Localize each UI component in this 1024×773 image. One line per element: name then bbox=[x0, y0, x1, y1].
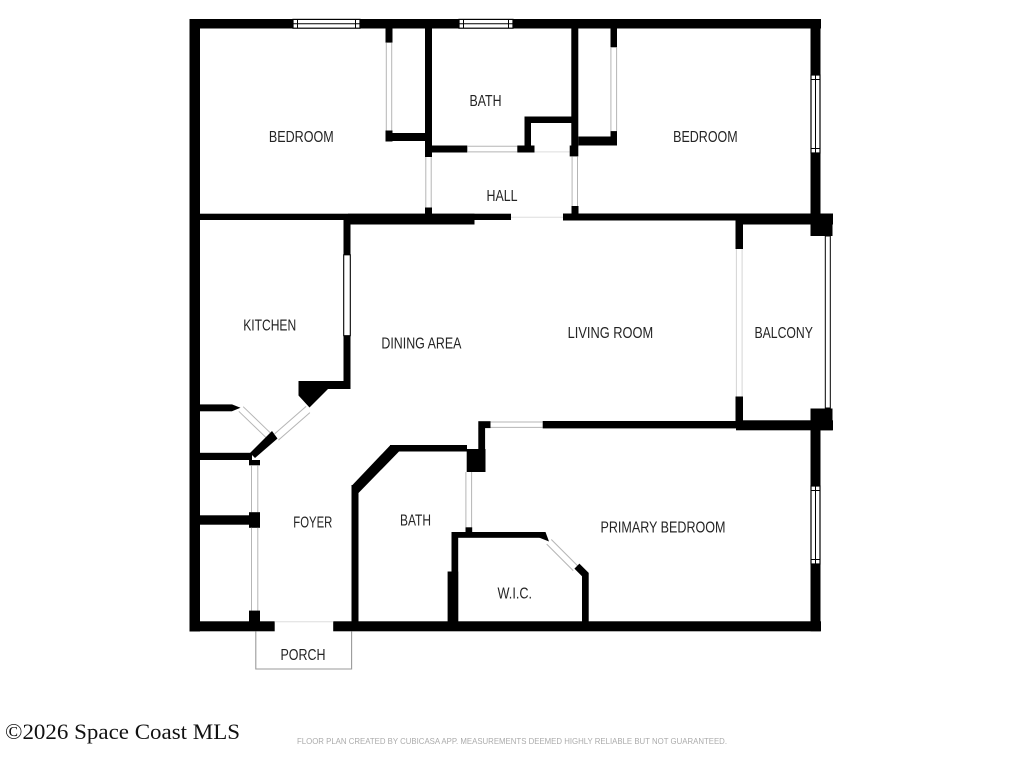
svg-text:LIVING ROOM: LIVING ROOM bbox=[568, 325, 654, 342]
svg-text:PRIMARY BEDROOM: PRIMARY BEDROOM bbox=[601, 520, 726, 537]
svg-text:BALCONY: BALCONY bbox=[754, 325, 813, 342]
svg-text:FOYER: FOYER bbox=[293, 514, 332, 531]
svg-text:DINING AREA: DINING AREA bbox=[381, 335, 461, 352]
svg-text:KITCHEN: KITCHEN bbox=[243, 318, 296, 335]
svg-text:BEDROOM: BEDROOM bbox=[673, 129, 738, 146]
svg-text:©2026 Space Coast MLS: ©2026 Space Coast MLS bbox=[5, 719, 240, 744]
svg-text:FLOOR PLAN CREATED BY CUBICASA: FLOOR PLAN CREATED BY CUBICASA APP. MEAS… bbox=[297, 736, 727, 746]
svg-text:PORCH: PORCH bbox=[281, 647, 326, 664]
svg-text:BEDROOM: BEDROOM bbox=[269, 129, 334, 146]
svg-text:HALL: HALL bbox=[487, 188, 518, 205]
svg-text:W.I.C.: W.I.C. bbox=[498, 586, 533, 603]
svg-text:BATH: BATH bbox=[400, 513, 431, 530]
svg-text:BATH: BATH bbox=[470, 93, 502, 110]
